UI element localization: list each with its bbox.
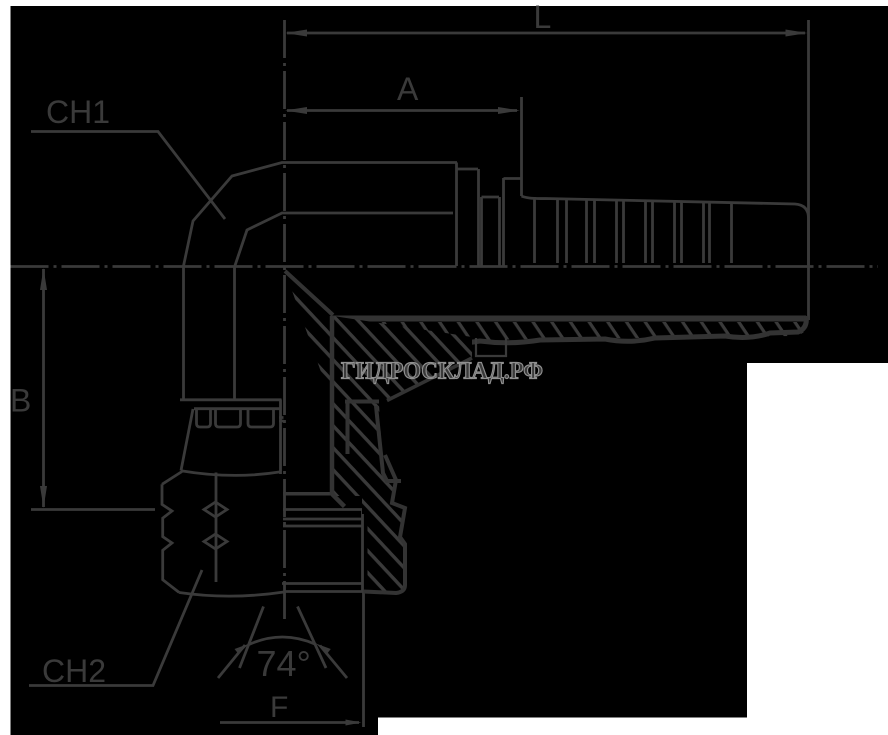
svg-text:F: F: [270, 691, 288, 724]
svg-text:CH1: CH1: [46, 94, 110, 130]
svg-text:74°: 74°: [257, 643, 311, 684]
svg-text:B: B: [10, 383, 31, 419]
svg-text:L: L: [534, 0, 552, 35]
svg-text:CH2: CH2: [42, 653, 106, 689]
svg-text:ГИДРОСКЛАД.РФ: ГИДРОСКЛАД.РФ: [341, 359, 543, 385]
svg-text:A: A: [397, 71, 419, 107]
